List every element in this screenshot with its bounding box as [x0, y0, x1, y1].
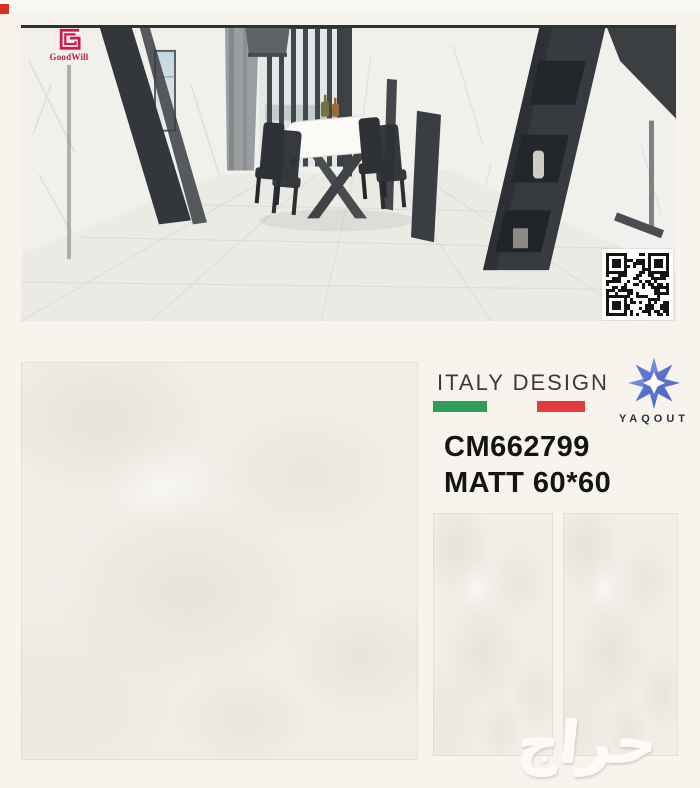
goodwill-logo: GoodWill [41, 27, 97, 62]
qr-code [602, 249, 673, 320]
goodwill-label: GoodWill [41, 52, 97, 62]
goodwill-monogram-icon [57, 27, 81, 51]
tile-swatch-large [21, 362, 418, 760]
table-shadow [259, 209, 415, 231]
italy-flag-green-bar [433, 401, 487, 412]
yaqout-logo: YAQOUT [606, 355, 700, 425]
top-strip [0, 0, 700, 13]
haraj-watermark: حراج [475, 714, 700, 772]
vase [533, 151, 544, 179]
yaqout-label: YAQOUT [606, 413, 700, 425]
italy-design-label: ITALY DESIGN [437, 370, 609, 396]
yaqout-star-icon [626, 355, 682, 411]
showroom-render: GoodWill [21, 25, 676, 321]
bottle [321, 102, 329, 117]
dining-room-scene [21, 25, 676, 321]
corner-artifact [0, 4, 9, 14]
bottle [332, 104, 339, 117]
italy-flag-red-bar [537, 401, 585, 412]
pendant-lamp [245, 25, 290, 57]
product-card: GoodWill ITALY DESIGN YAQOUT CM662799 MA… [0, 0, 700, 788]
product-finish: MATT 60*60 [444, 467, 611, 500]
product-code: CM662799 [444, 431, 590, 464]
qr-module [666, 313, 669, 316]
shelf-object [513, 228, 528, 248]
frame-top-edge [21, 25, 676, 28]
